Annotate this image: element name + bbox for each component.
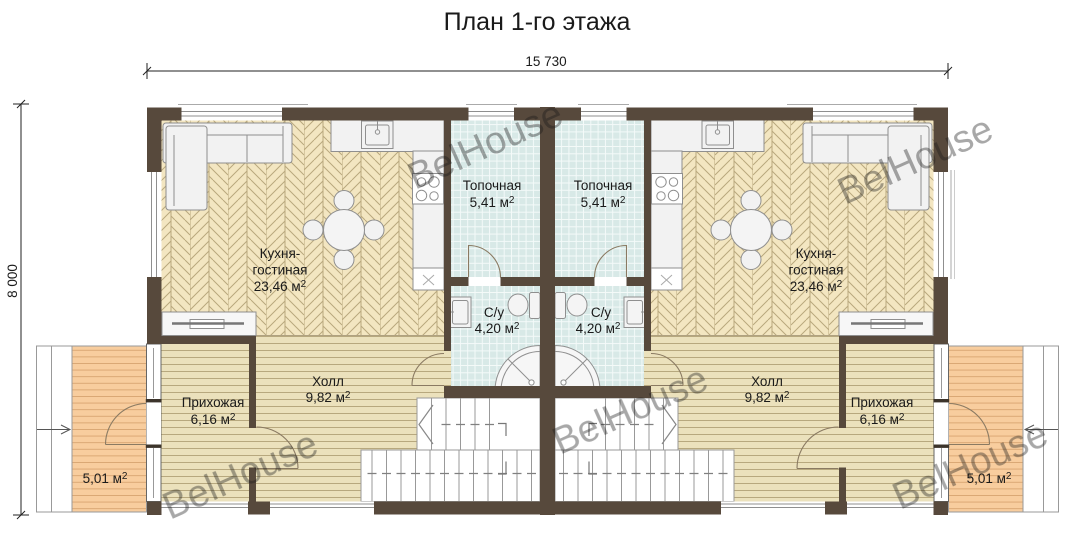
svg-text:Прихожая: Прихожая <box>182 395 245 410</box>
svg-text:Кухня-: Кухня- <box>796 246 837 261</box>
svg-text:6,16 м2: 6,16 м2 <box>860 412 905 427</box>
svg-text:23,46 м2: 23,46 м2 <box>790 279 843 294</box>
svg-text:5,41 м2: 5,41 м2 <box>581 195 626 210</box>
svg-text:гостиная: гостиная <box>789 263 844 278</box>
svg-text:Холл: Холл <box>312 374 344 389</box>
svg-text:Кухня-: Кухня- <box>260 246 301 261</box>
svg-text:9,82 м2: 9,82 м2 <box>745 390 790 405</box>
svg-text:гостиная: гостиная <box>253 263 308 278</box>
svg-text:6,16 м2: 6,16 м2 <box>191 412 236 427</box>
svg-text:С/у: С/у <box>591 305 612 320</box>
svg-text:Топочная: Топочная <box>574 178 633 193</box>
svg-text:4,20 м2: 4,20 м2 <box>475 321 520 336</box>
svg-text:Прихожая: Прихожая <box>851 395 914 410</box>
svg-text:Топочная: Топочная <box>463 178 522 193</box>
svg-text:9,82 м2: 9,82 м2 <box>306 390 351 405</box>
svg-text:8 000: 8 000 <box>5 264 20 298</box>
svg-text:5,01 м2: 5,01 м2 <box>83 471 128 486</box>
svg-text:С/у: С/у <box>484 305 505 320</box>
svg-text:23,46 м2: 23,46 м2 <box>254 279 307 294</box>
svg-text:Холл: Холл <box>751 374 783 389</box>
svg-text:5,41 м2: 5,41 м2 <box>470 195 515 210</box>
svg-text:4,20 м2: 4,20 м2 <box>576 321 621 336</box>
svg-text:План 1-го этажа: План 1-го этажа <box>444 8 631 36</box>
svg-text:15 730: 15 730 <box>525 54 566 69</box>
